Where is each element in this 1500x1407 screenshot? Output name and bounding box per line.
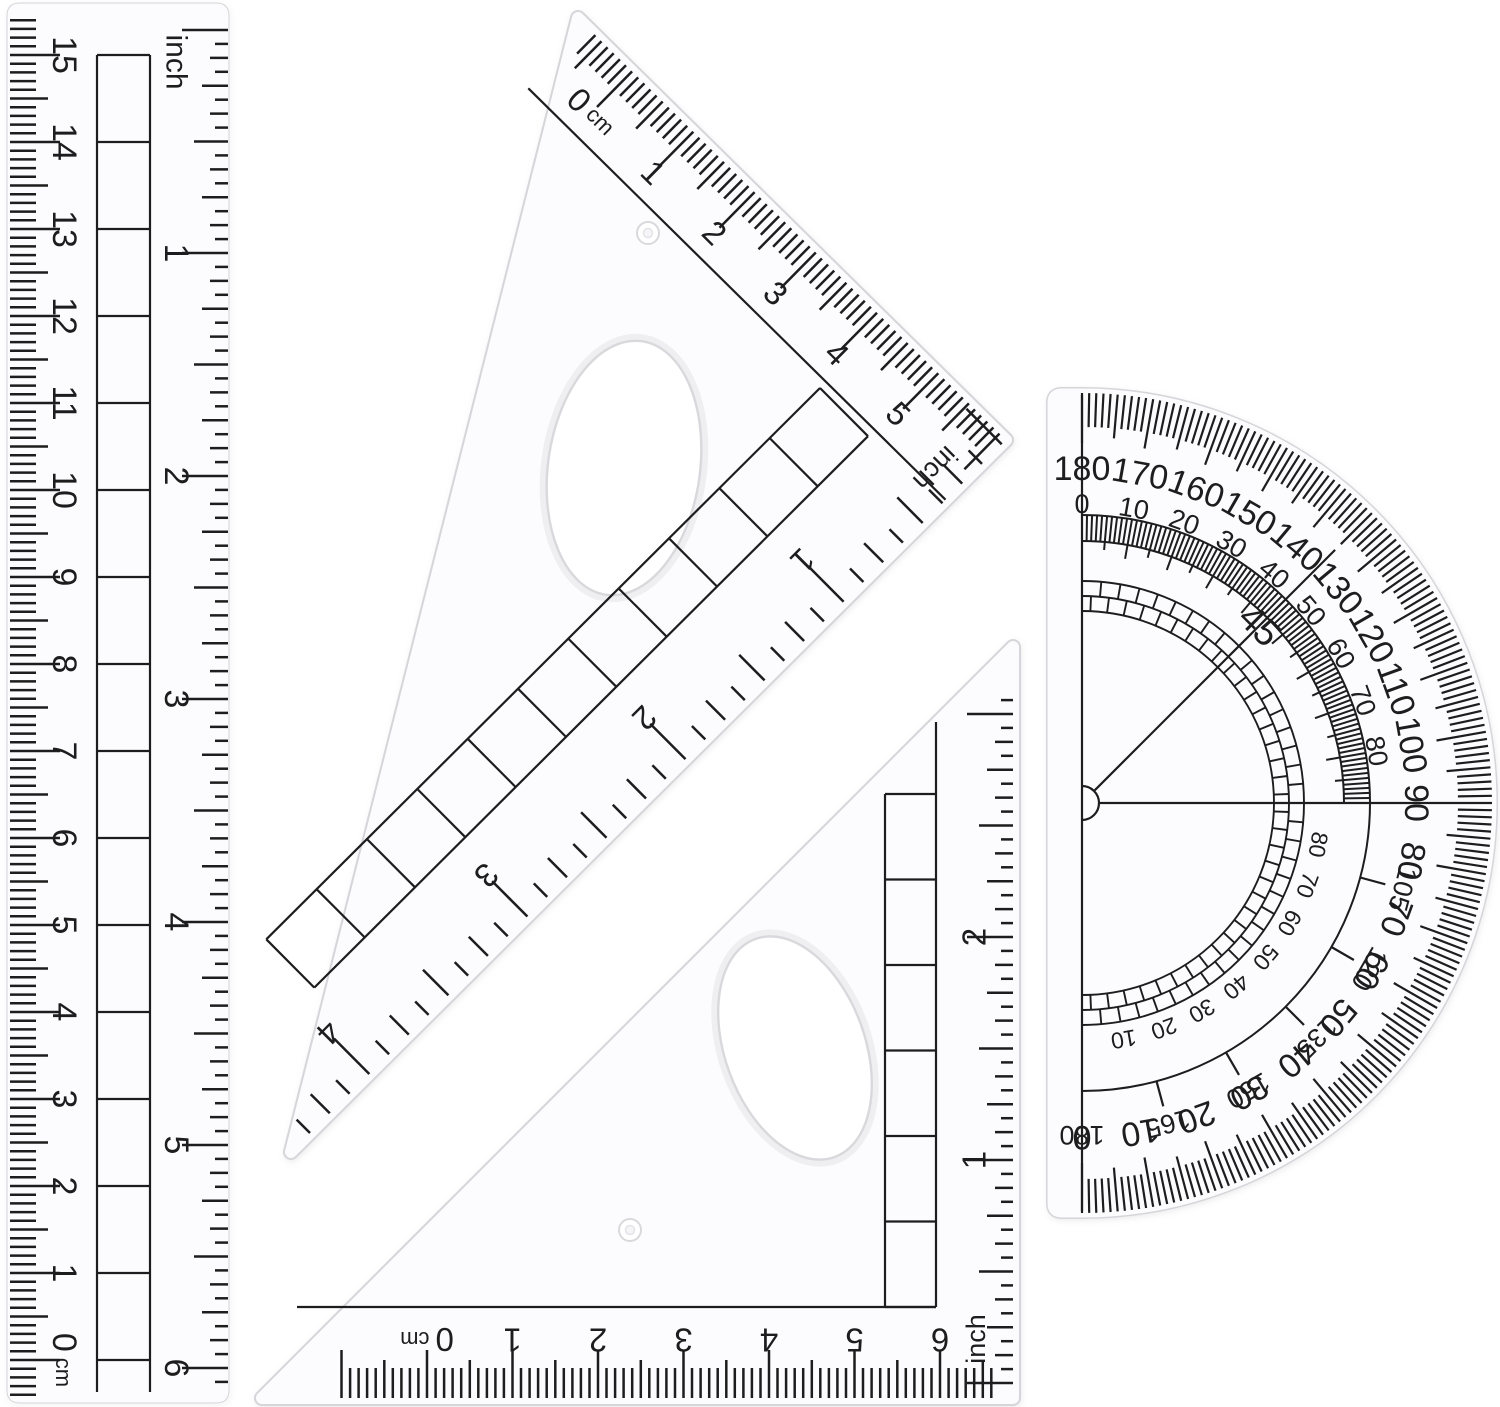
protractor: 1801701601501401301201101009080706050403… (1050, 391, 1494, 1215)
scale-number: 3 (45, 1090, 83, 1109)
scale-number: 1 (956, 1151, 993, 1169)
scale-number: 3 (157, 690, 195, 709)
scale-number: 1 (157, 244, 195, 263)
scale-number: 11 (45, 385, 83, 420)
scale-number: 80 (1359, 734, 1394, 769)
scale-number: 10 (1117, 491, 1152, 526)
scale-number: 4 (157, 913, 195, 932)
geometry-tool-set-photo: 0cm123456789101112131415inch123456 0cm12… (0, 0, 1500, 1407)
scale-number: 180 (1059, 1120, 1104, 1150)
scale-number: 9 (45, 568, 83, 587)
scale-number: 13 (45, 210, 83, 248)
scale-number: 1 (45, 1264, 83, 1283)
scale-number: 3 (674, 1322, 692, 1359)
scale-number: 2 (589, 1322, 607, 1359)
scale-number: 7 (45, 742, 83, 761)
scale-number: 10 (45, 471, 83, 509)
scale-number: 6 (45, 829, 83, 848)
scale-number: 2 (45, 1177, 83, 1196)
scale-number: 5 (845, 1322, 863, 1359)
scene-canvas: 0cm123456789101112131415inch123456 0cm12… (0, 0, 1500, 1407)
unit-label: inch (961, 1314, 991, 1364)
scale-number: 6 (157, 1359, 195, 1378)
scale-number: 2 (956, 928, 993, 946)
scale-number: 1 (503, 1322, 521, 1359)
scale-number: 6 (931, 1322, 949, 1359)
scale-number: 8 (45, 655, 83, 674)
scale-number: 15 (45, 36, 83, 74)
unit-label: inch (160, 34, 193, 89)
scale-number: 5 (157, 1136, 195, 1155)
scale-number: 4 (45, 1003, 83, 1022)
scale-number: 5 (45, 916, 83, 935)
scale-number: 10 (1109, 1024, 1139, 1054)
scale-number: 4 (760, 1322, 778, 1359)
scale-number: 12 (45, 297, 83, 335)
scale-number: 80 (1303, 830, 1333, 860)
scale-number: 0 (1074, 489, 1089, 519)
scale-number: 90 (1397, 784, 1435, 822)
scale-number: 180 (1054, 450, 1111, 488)
straight-ruler: 0cm123456789101112131415inch123456 (8, 4, 228, 1402)
scale-number: 14 (45, 123, 83, 161)
scale-number: 2 (157, 467, 195, 486)
